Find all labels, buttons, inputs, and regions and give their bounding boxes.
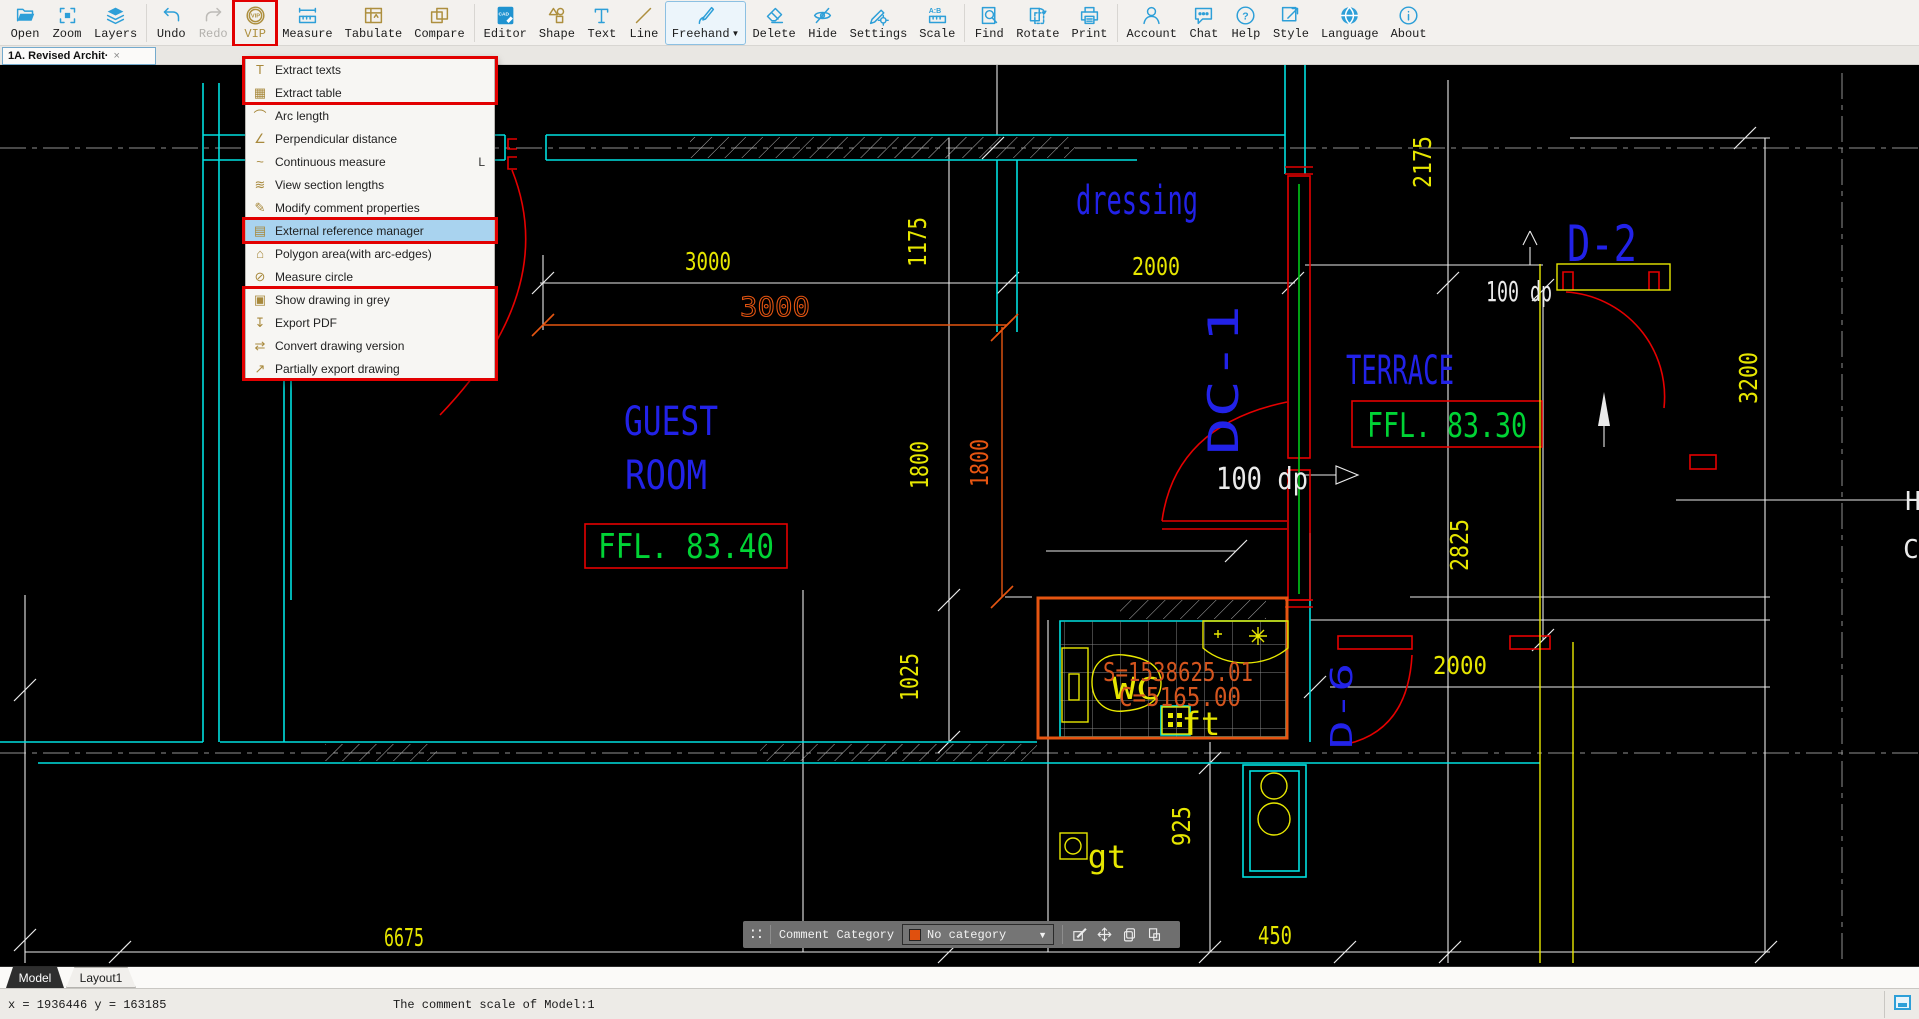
dim-1800: 1800	[905, 441, 934, 489]
dim-2000-top: 2000	[1132, 252, 1180, 281]
print-icon	[1079, 5, 1100, 26]
menu-item-extract-table[interactable]: ▦Extract table	[246, 81, 494, 104]
sheet-tab-bar: Model Layout1	[0, 966, 1919, 988]
ffl-guest-label: FFL. 83.40	[598, 527, 774, 567]
open-button[interactable]: Open	[4, 1, 46, 45]
close-tab-icon[interactable]: ×	[113, 50, 119, 62]
eraser-icon	[764, 5, 785, 26]
door-label-dc1: DC-1	[1199, 305, 1248, 455]
dim-1800-orange: 1800	[965, 439, 994, 487]
undo-icon	[161, 5, 182, 26]
comment-category-bar: ∷ Comment Category No category ▼	[743, 921, 1180, 948]
comment-bar-separator	[770, 925, 771, 944]
room-label-terrace: TERRACE	[1346, 348, 1454, 394]
about-info-icon	[1398, 5, 1419, 26]
tab-layout1[interactable]: Layout1	[66, 967, 136, 988]
door-label-d2: D-2	[1567, 215, 1637, 273]
toolbar-separator	[964, 4, 965, 42]
minimize-bar	[1898, 1003, 1907, 1007]
status-bar-separator	[1884, 991, 1885, 1018]
measure-circle-icon: ⊘	[252, 269, 268, 285]
redo-icon	[203, 5, 224, 26]
toolbar-separator	[146, 4, 147, 42]
dim-2825: 2825	[1445, 519, 1474, 571]
fixture-circle	[1261, 773, 1287, 799]
dim-3000-orange: 3000	[740, 292, 810, 323]
document-tab[interactable]: 1A. Revised Archit· ×	[2, 47, 156, 65]
vip-dropdown-menu: TExtract texts ▦Extract table ⌒Arc lengt…	[245, 57, 495, 381]
chat-button[interactable]: Chat	[1183, 1, 1225, 45]
export-pdf-icon: ↧	[252, 315, 268, 331]
minimize-panel-icon[interactable]	[1894, 995, 1911, 1010]
rotate-button[interactable]: Rotate	[1010, 1, 1065, 45]
status-message: The comment scale of Model:1	[393, 998, 595, 1012]
ffl-terrace-label: FFL. 83.30	[1367, 406, 1527, 446]
dim-450: 450	[1258, 921, 1292, 950]
language-button[interactable]: Language	[1315, 1, 1385, 45]
gt-label: gt	[1088, 838, 1127, 876]
language-globe-icon	[1339, 5, 1360, 26]
line-button[interactable]: Line	[623, 1, 665, 45]
arc-length-icon: ⌒	[252, 106, 268, 125]
undo-button[interactable]: Undo	[150, 1, 192, 45]
toolbar-separator	[474, 4, 475, 42]
compare-button[interactable]: Compare	[408, 1, 470, 45]
layers-icon	[105, 5, 126, 26]
print-button[interactable]: Print	[1066, 1, 1114, 45]
door-label-d6: D-6	[1325, 663, 1360, 749]
modify-comment-properties-icon: ✎	[252, 200, 268, 216]
chat-bubble-icon	[1193, 5, 1214, 26]
vip-icon: VIP	[245, 5, 266, 26]
freehand-dropdown-caret[interactable]: ▼	[732, 29, 740, 38]
dim-3000-top: 3000	[685, 247, 731, 276]
menu-item-view-section-lengths[interactable]: ≋View section lengths	[246, 173, 494, 196]
fixture-circle	[1258, 803, 1290, 835]
dim-2000-right: 2000	[1433, 651, 1487, 680]
tabulate-table-icon	[363, 5, 384, 26]
editor-icon: CAD	[495, 5, 516, 26]
convert-drawing-version-icon: ⇄	[252, 338, 268, 354]
paste-icon[interactable]	[1146, 926, 1163, 943]
polygon-area-icon: ⌂	[252, 246, 268, 261]
svg-text:CAD: CAD	[498, 11, 509, 17]
menu-item-continuous-measure[interactable]: ~Continuous measureL	[246, 150, 494, 173]
menu-item-measure-circle[interactable]: ⊘Measure circle	[246, 265, 494, 288]
find-button[interactable]: Find	[968, 1, 1010, 45]
scale-icon: A:B	[927, 5, 948, 26]
cut-label-c: C	[1903, 535, 1919, 565]
menu-item-modify-comment-properties[interactable]: ✎Modify comment properties	[246, 196, 494, 219]
measure-ruler-icon	[297, 5, 318, 26]
menu-item-polygon-area[interactable]: ⌂Polygon area(with arc-edges)	[246, 242, 494, 265]
perpendicular-distance-icon: ∠	[252, 131, 268, 147]
drawing-texts: 3000 1175 2000 2175 1800 1025 925 6675 4…	[384, 136, 1919, 952]
settings-gear-icon	[868, 5, 889, 26]
app-window: Open Zoom Layers Undo Redo VIP VIP Measu…	[0, 0, 1919, 1019]
cursor-coordinates: x = 1936446 y = 163185	[8, 998, 166, 1012]
show-drawing-grey-icon: ▣	[252, 292, 268, 308]
dropdown-caret-icon: ▼	[1038, 930, 1047, 940]
open-folder-icon	[15, 5, 36, 26]
room-label-dressing: dressing	[1076, 178, 1198, 224]
svg-text:A:B: A:B	[929, 7, 941, 14]
tabulate-button[interactable]: Tabulate	[339, 1, 409, 45]
document-tab-title: 1A. Revised Archit·	[8, 50, 108, 62]
text-button[interactable]: Text	[581, 1, 623, 45]
scale-button[interactable]: A:B Scale	[913, 1, 961, 45]
category-color-swatch	[909, 929, 921, 941]
menu-item-export-pdf[interactable]: ↧Export PDF	[246, 311, 494, 334]
style-icon	[1280, 5, 1301, 26]
line-icon	[633, 5, 654, 26]
view-section-lengths-icon: ≋	[252, 177, 268, 193]
extract-table-icon: ▦	[252, 85, 268, 101]
ft-label: ft	[1182, 705, 1221, 743]
dim-1175: 1175	[903, 217, 932, 267]
rotate-icon	[1027, 5, 1048, 26]
category-dropdown[interactable]: No category ▼	[902, 924, 1054, 945]
freehand-pen-icon	[695, 5, 716, 26]
editor-button[interactable]: CAD Editor	[478, 1, 533, 45]
account-person-icon	[1141, 5, 1162, 26]
help-button[interactable]: ? Help	[1225, 1, 1267, 45]
vip-button[interactable]: VIP VIP	[234, 1, 276, 45]
room-label-room: ROOM	[625, 453, 707, 499]
edit-comment-icon[interactable]	[1071, 926, 1088, 943]
cut-label-h: H	[1905, 487, 1919, 517]
circumference-measurement: C=5165.00	[1119, 683, 1241, 713]
find-magnifier-icon	[979, 5, 1000, 26]
menu-item-external-reference-manager[interactable]: ▤External reference manager	[246, 219, 494, 242]
measure-button[interactable]: Measure	[276, 1, 338, 45]
text-icon	[591, 5, 612, 26]
dim-925: 925	[1167, 806, 1196, 846]
help-icon: ?	[1235, 5, 1256, 26]
menu-item-partially-export-drawing[interactable]: ↗Partially export drawing	[246, 357, 494, 380]
menu-item-perpendicular-distance[interactable]: ∠Perpendicular distance	[246, 127, 494, 150]
dim-6675: 6675	[384, 923, 424, 952]
menu-item-arc-length[interactable]: ⌒Arc length	[246, 104, 494, 127]
toolbar-separator	[1117, 4, 1118, 42]
account-button[interactable]: Account	[1121, 1, 1183, 45]
dim-1025: 1025	[895, 653, 924, 701]
compare-icon	[429, 5, 450, 26]
main-toolbar: Open Zoom Layers Undo Redo VIP VIP Measu…	[0, 0, 1919, 46]
hide-eye-icon	[812, 5, 833, 26]
dim-3200: 3200	[1734, 352, 1763, 404]
extract-texts-icon: T	[252, 62, 268, 77]
layers-button[interactable]: Layers	[88, 1, 143, 45]
delete-button[interactable]: Delete	[746, 1, 801, 45]
external-reference-manager-icon: ▤	[252, 223, 268, 239]
svg-text:?: ?	[1243, 10, 1249, 22]
category-selected-value: No category	[927, 928, 1032, 942]
svg-text:VIP: VIP	[251, 13, 260, 19]
partially-export-drawing-icon: ↗	[252, 361, 268, 377]
shape-icon	[546, 5, 567, 26]
continuous-measure-icon: ~	[252, 154, 268, 169]
grip-icon[interactable]: ∷	[751, 926, 762, 943]
copy-icon[interactable]	[1121, 926, 1138, 943]
comment-category-label: Comment Category	[779, 928, 894, 942]
style-button[interactable]: Style	[1267, 1, 1315, 45]
menu-item-extract-texts[interactable]: TExtract texts	[246, 58, 494, 81]
dim-2175: 2175	[1408, 136, 1437, 188]
tab-model[interactable]: Model	[6, 967, 64, 988]
hide-button[interactable]: Hide	[802, 1, 844, 45]
status-bar: x = 1936446 y = 163185 The comment scale…	[0, 988, 1919, 1019]
gully-trap-symbol	[1060, 833, 1087, 859]
note-100dp-mid: 100 dp	[1216, 462, 1308, 497]
about-button[interactable]: About	[1385, 1, 1433, 45]
shape-button[interactable]: Shape	[533, 1, 581, 45]
comment-bar-separator	[1062, 925, 1063, 944]
zoom-selection-icon	[57, 5, 78, 26]
zoom-button[interactable]: Zoom	[46, 1, 88, 45]
room-label-guest: GUEST	[624, 399, 718, 445]
menu-item-convert-drawing-version[interactable]: ⇄Convert drawing version	[246, 334, 494, 357]
settings-button[interactable]: Settings	[844, 1, 914, 45]
note-100dp-top: 100 dp	[1486, 275, 1552, 308]
redo-button[interactable]: Redo	[192, 1, 234, 45]
move-icon[interactable]	[1096, 926, 1113, 943]
freehand-button[interactable]: Freehand▼	[665, 1, 747, 45]
menu-item-show-drawing-in-grey[interactable]: ▣Show drawing in grey	[246, 288, 494, 311]
